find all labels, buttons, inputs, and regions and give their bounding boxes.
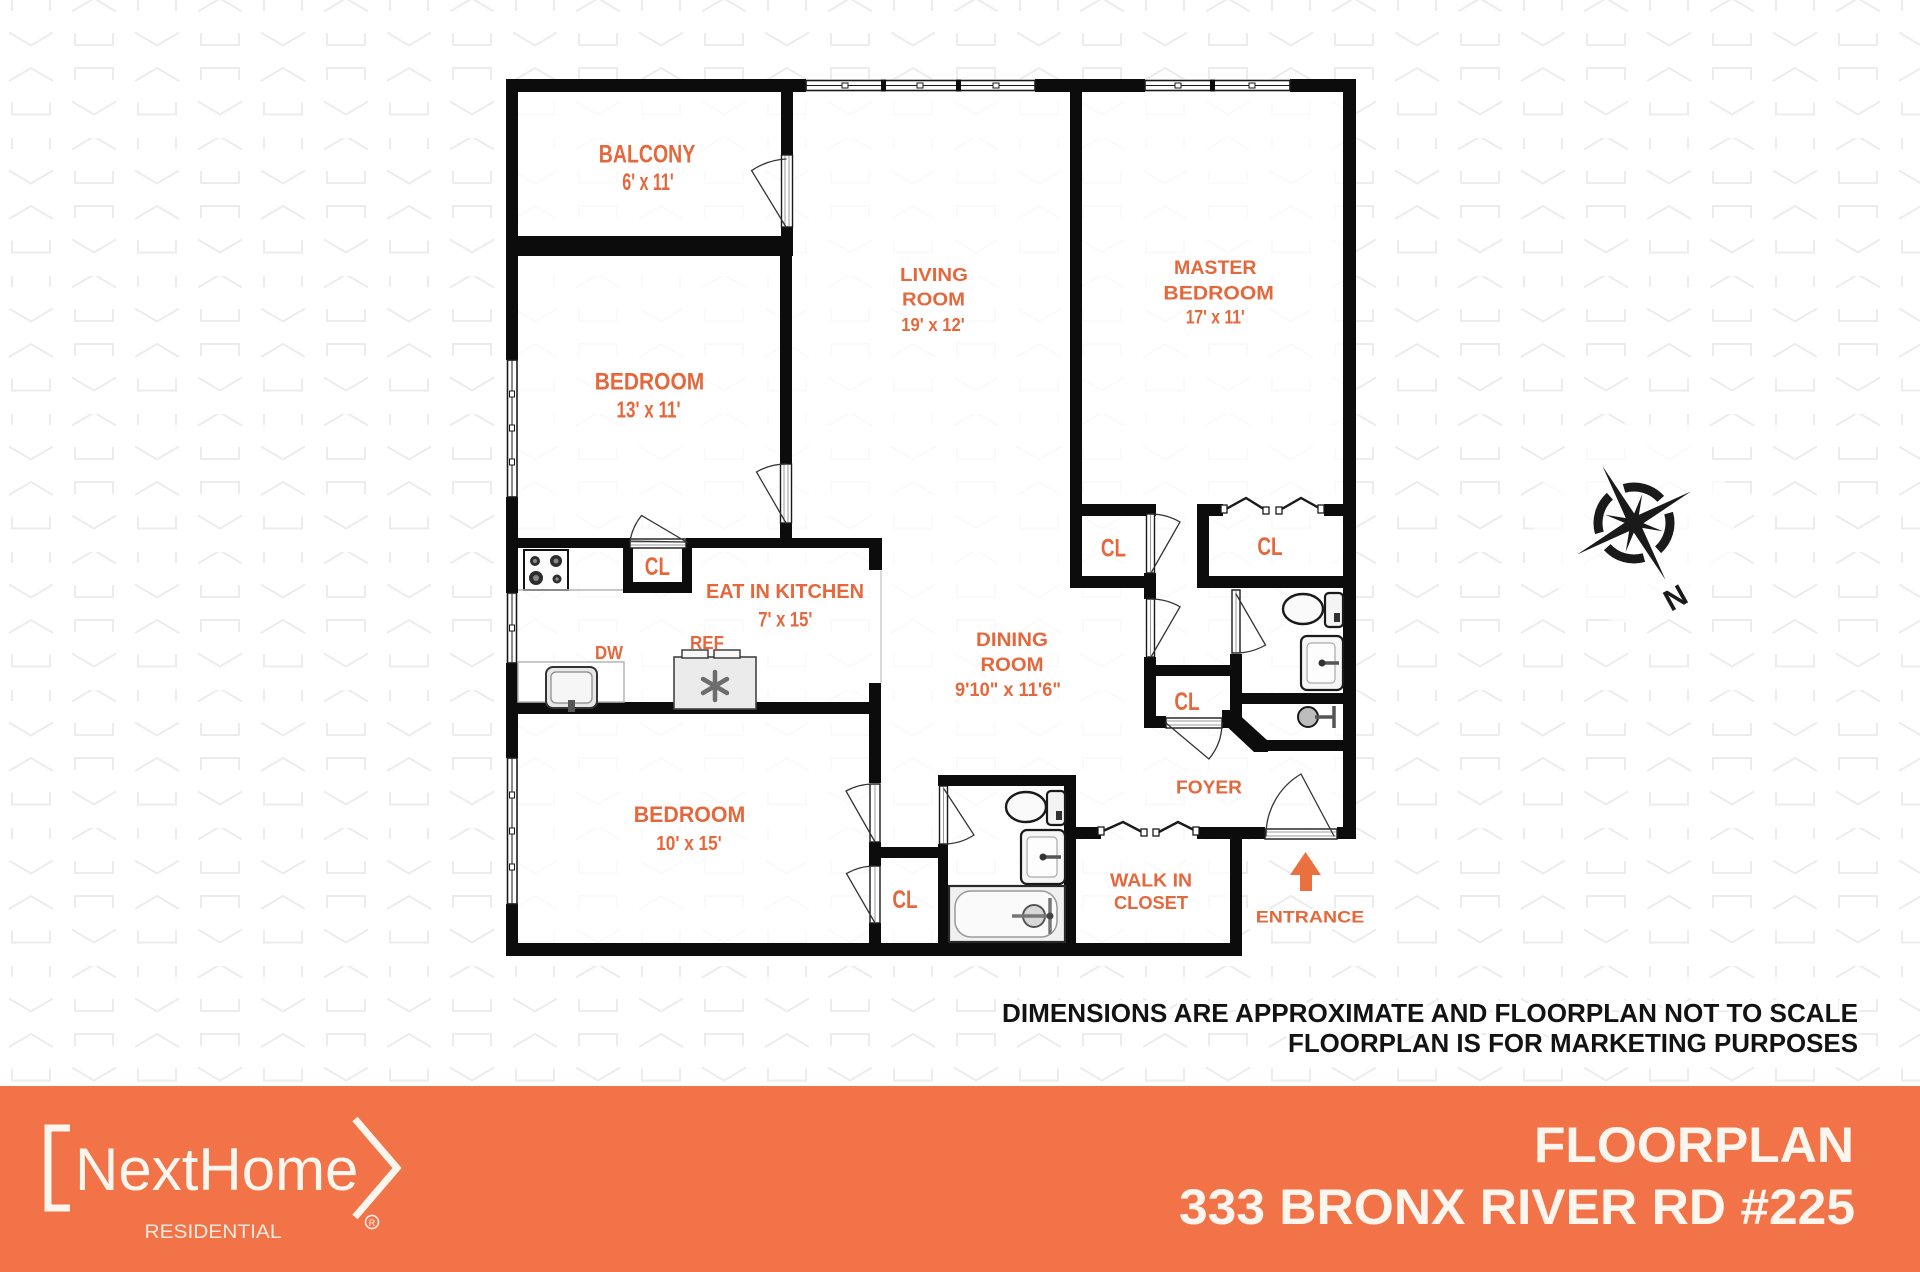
svg-text:BEDROOM: BEDROOM bbox=[1163, 284, 1274, 305]
svg-text:FOYER: FOYER bbox=[1176, 777, 1242, 798]
svg-text:9'10" x 11'6": 9'10" x 11'6" bbox=[955, 679, 1061, 701]
svg-text:ROOM: ROOM bbox=[902, 289, 965, 310]
svg-text:CL: CL bbox=[1174, 689, 1199, 716]
svg-text:FLOORPLAN: FLOORPLAN bbox=[1534, 1117, 1854, 1173]
svg-text:ENTRANCE: ENTRANCE bbox=[1256, 908, 1365, 927]
svg-text:EAT IN KITCHEN: EAT IN KITCHEN bbox=[706, 581, 864, 603]
svg-text:13' x 11': 13' x 11' bbox=[617, 397, 681, 423]
svg-text:7' x 15': 7' x 15' bbox=[758, 608, 812, 632]
svg-text:10' x 15': 10' x 15' bbox=[656, 833, 722, 855]
svg-text:RESIDENTIAL: RESIDENTIAL bbox=[145, 1222, 282, 1243]
svg-text:NextHome: NextHome bbox=[75, 1136, 358, 1203]
svg-text:BEDROOM: BEDROOM bbox=[634, 802, 746, 827]
svg-text:333 BRONX RIVER RD #225: 333 BRONX RIVER RD #225 bbox=[1179, 1179, 1855, 1235]
svg-text:R: R bbox=[369, 1218, 376, 1228]
svg-text:CLOSET: CLOSET bbox=[1114, 892, 1189, 913]
svg-text:FLOORPLAN IS FOR MARKETING PUR: FLOORPLAN IS FOR MARKETING PURPOSES bbox=[1288, 1028, 1858, 1058]
svg-text:CL: CL bbox=[1257, 534, 1282, 561]
svg-text:DIMENSIONS ARE APPROXIMATE AND: DIMENSIONS ARE APPROXIMATE AND FLOORPLAN… bbox=[1002, 998, 1858, 1028]
svg-text:ROOM: ROOM bbox=[981, 654, 1044, 676]
svg-text:MASTER: MASTER bbox=[1174, 258, 1257, 279]
svg-text:LIVING: LIVING bbox=[900, 264, 968, 285]
svg-text:CL: CL bbox=[892, 887, 917, 914]
svg-text:CL: CL bbox=[645, 554, 670, 581]
svg-text:17' x 11': 17' x 11' bbox=[1186, 308, 1245, 329]
svg-text:DW: DW bbox=[595, 643, 623, 663]
svg-text:CL: CL bbox=[1101, 535, 1126, 562]
svg-text:DINING: DINING bbox=[976, 629, 1048, 651]
svg-text:6' x 11': 6' x 11' bbox=[622, 169, 674, 196]
svg-text:19' x 12': 19' x 12' bbox=[901, 314, 965, 335]
svg-text:WALK IN: WALK IN bbox=[1110, 870, 1192, 891]
svg-text:BALCONY: BALCONY bbox=[599, 141, 696, 169]
svg-text:REF: REF bbox=[690, 633, 724, 653]
svg-text:BEDROOM: BEDROOM bbox=[595, 369, 705, 396]
